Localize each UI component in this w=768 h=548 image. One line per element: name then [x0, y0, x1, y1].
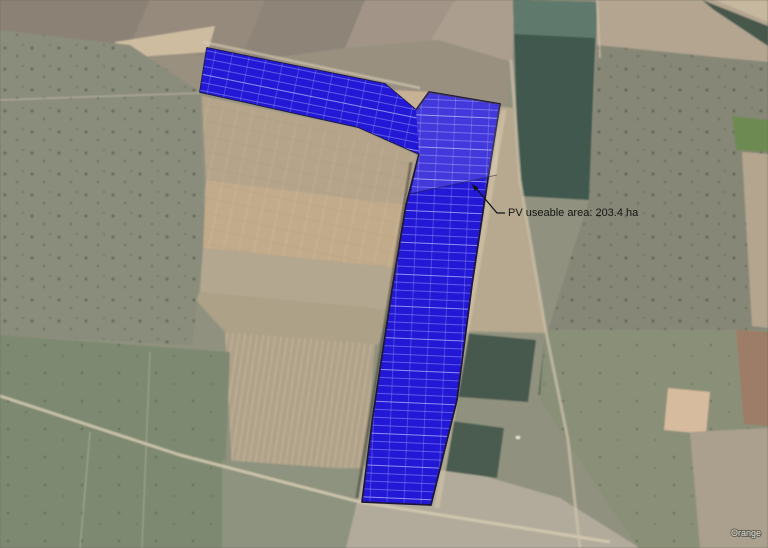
field-bottomcentre-pasture	[222, 460, 364, 548]
map-watermark-label: Orange	[731, 528, 761, 538]
left-scrub-trees	[0, 30, 205, 345]
satellite-map-screenshot: PV useable area: 203.4 ha Orange	[0, 0, 768, 548]
striped-plough-furrows	[225, 332, 375, 470]
field-bright-green-strip	[732, 116, 768, 152]
pv-area-annotation: PV useable area: 203.4 ha	[508, 207, 639, 219]
building-shed	[516, 436, 520, 439]
field-pink-square	[664, 388, 710, 434]
satellite-map: PV useable area: 203.4 ha Orange	[0, 0, 768, 548]
pv-light-upper-block	[411, 92, 500, 193]
bottomleft-pasture-trees	[0, 335, 230, 548]
field-dark-teal-light-top	[513, 0, 597, 38]
